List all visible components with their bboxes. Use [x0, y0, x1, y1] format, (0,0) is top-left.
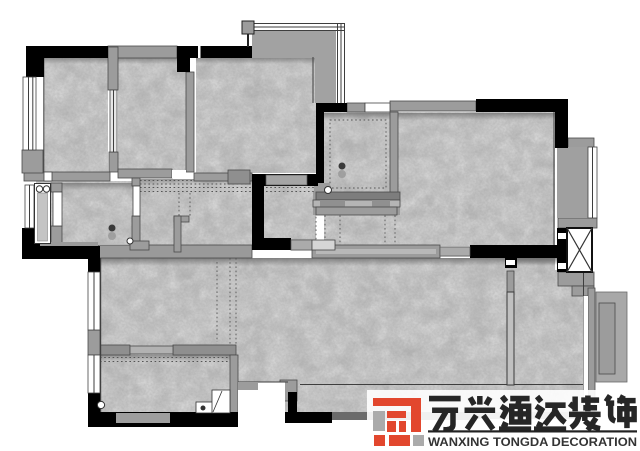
svg-text:WANXING TONGDA DECORATION: WANXING TONGDA DECORATION	[428, 435, 637, 449]
